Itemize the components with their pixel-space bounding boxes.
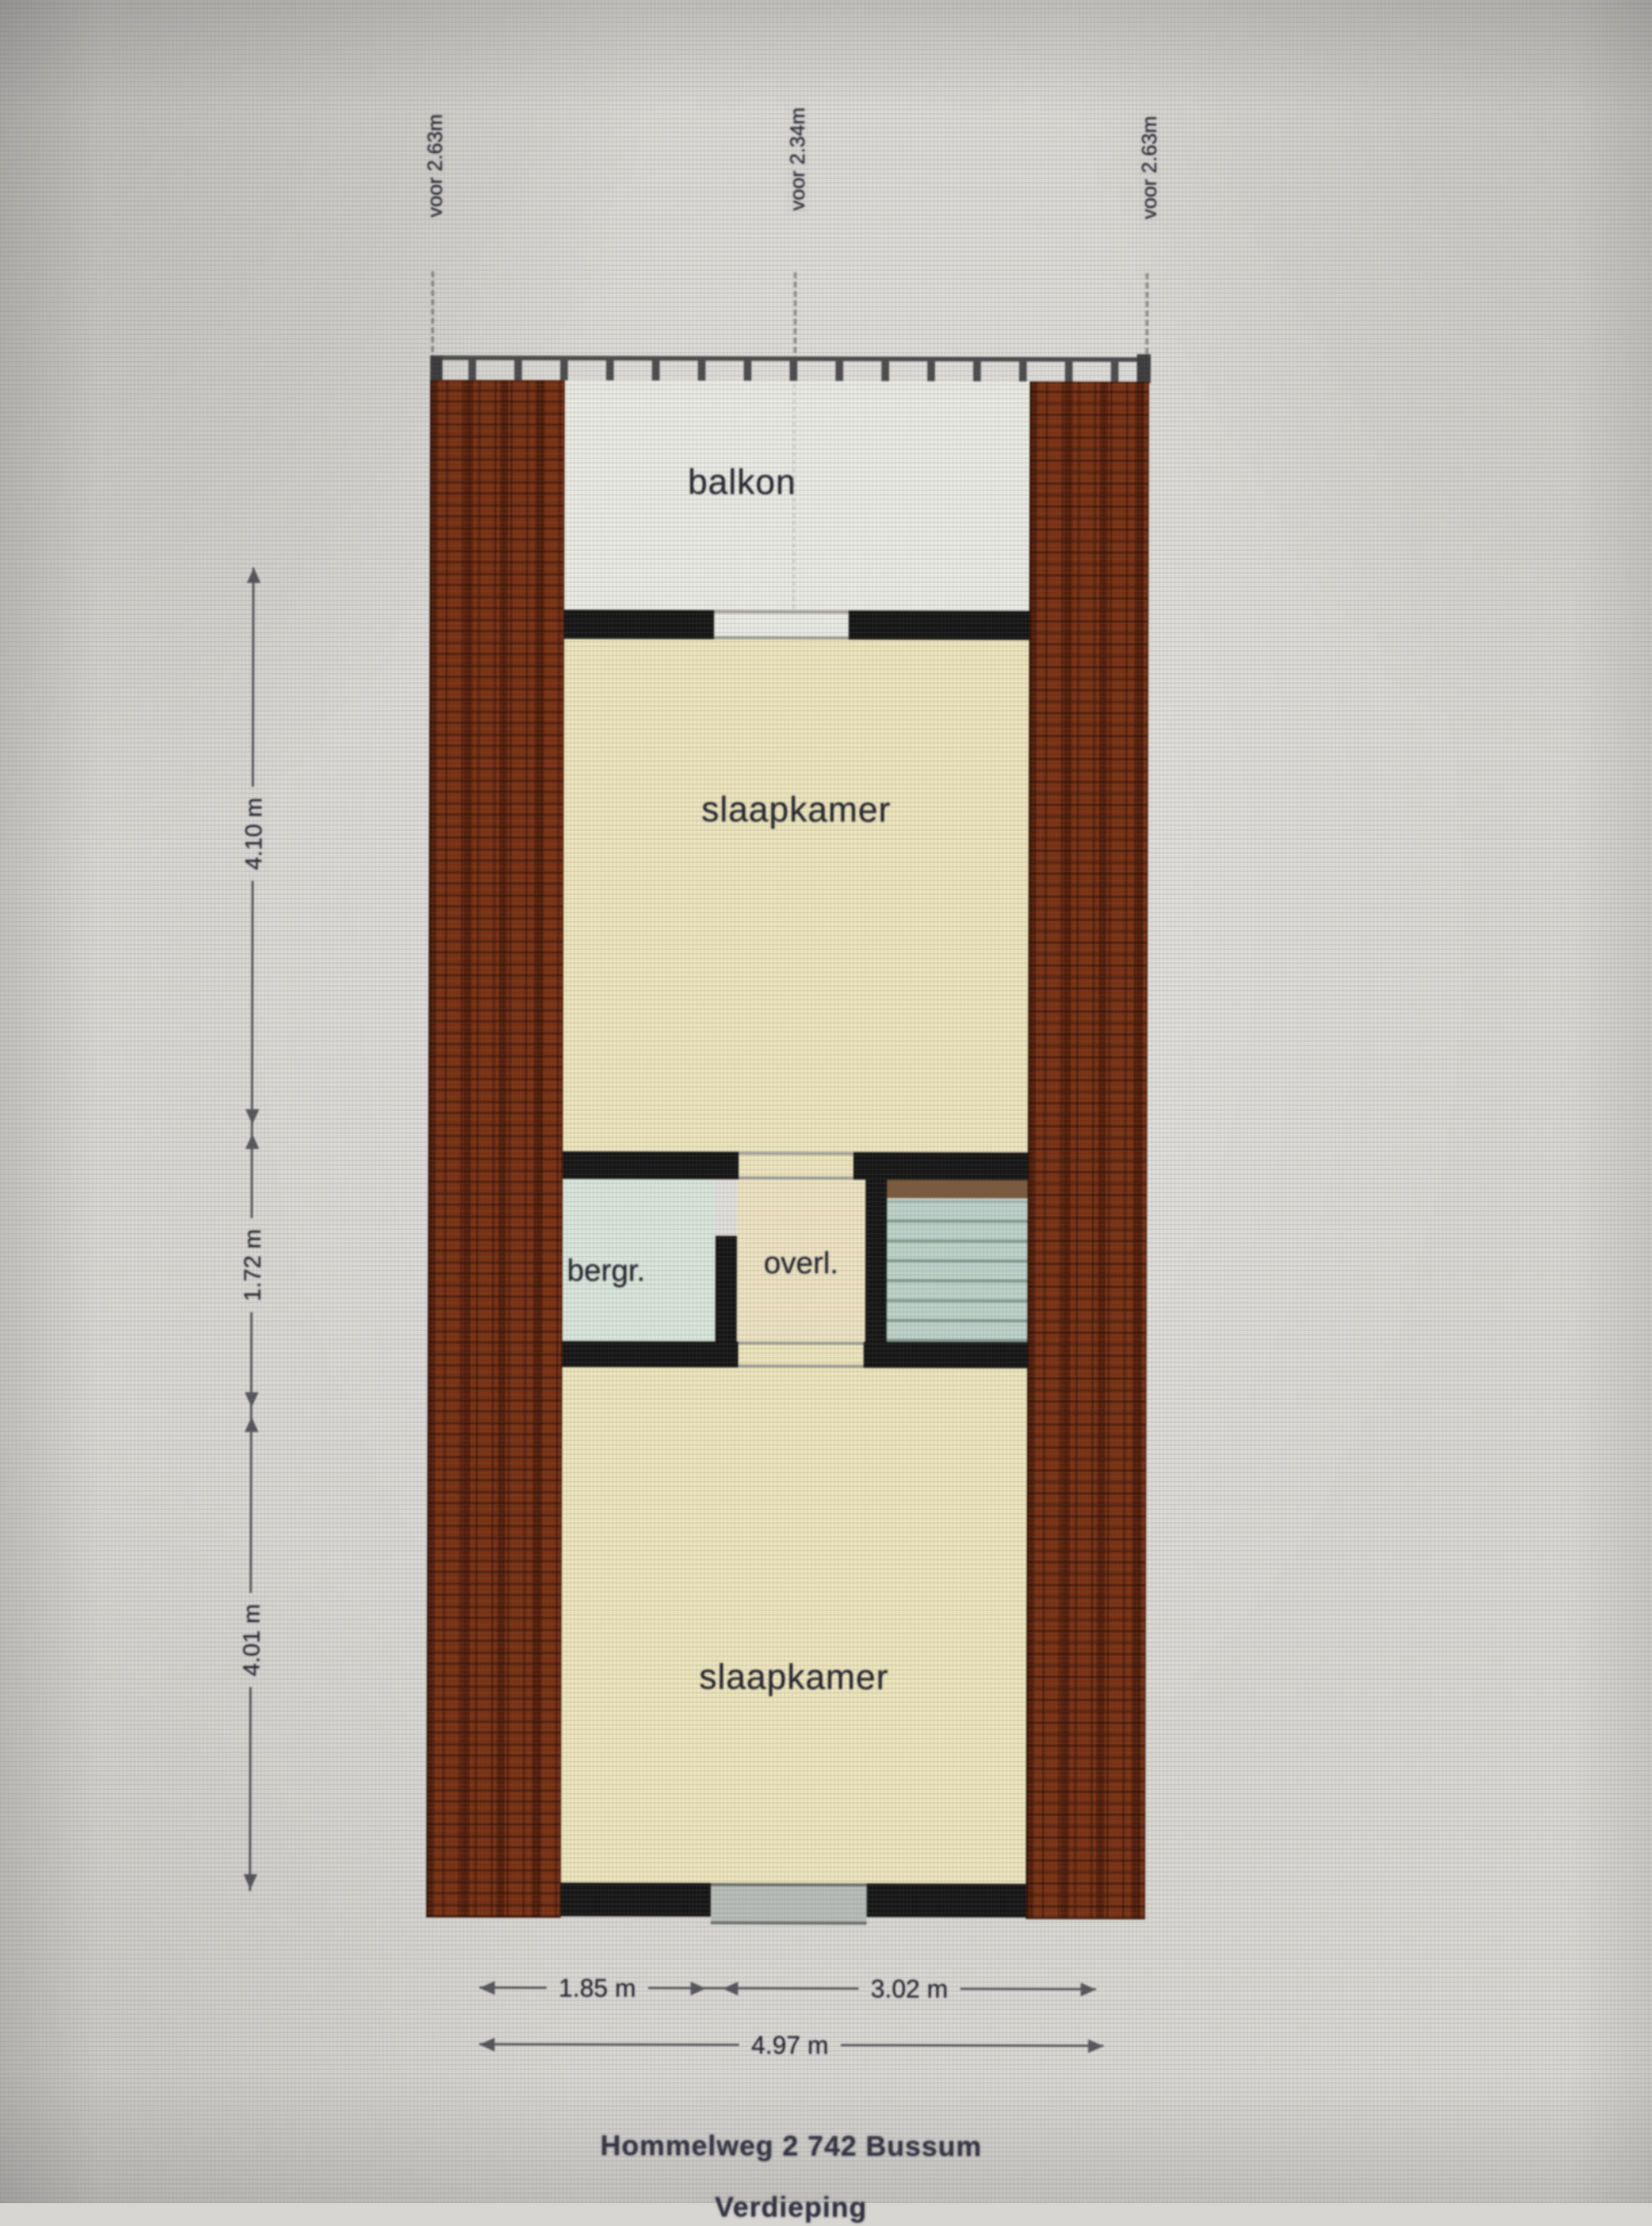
screen-photo-background: voor 2.63m voor 2.34m voor 2.63m balkon …	[0, 0, 1652, 2203]
bottom-dim-label-right: 3.02 m	[858, 1974, 960, 2003]
stair-divider-wall	[865, 1152, 887, 1342]
dim-arrow	[1088, 2039, 1104, 2053]
railing-corner-post-left	[430, 356, 442, 382]
landing-label: overl.	[763, 1246, 838, 1281]
stairwell	[886, 1180, 1028, 1342]
dim-arrow	[246, 1109, 259, 1124]
brick-wall-left	[426, 380, 564, 1918]
bottom-wall-right	[867, 1883, 1026, 1918]
railing-corner-post-right	[1137, 354, 1150, 383]
left-dim-label-middle: 1.72 m	[239, 1219, 266, 1313]
plan-caption-address: Hommelweg 2 742 Bussum	[600, 2130, 982, 2163]
bottom-window	[711, 1883, 867, 1925]
balcony-wall-left	[564, 610, 714, 639]
bottom-dim-label-total: 4.97 m	[739, 2031, 841, 2060]
stairwell-landing-edge	[887, 1180, 1028, 1198]
dim-arrow	[247, 568, 261, 583]
left-dim-label-lower: 4.01 m	[238, 1593, 265, 1687]
top-dimension-label-middle: voor 2.34m	[786, 103, 810, 215]
dim-arrow	[245, 1417, 259, 1432]
floor-plan: voor 2.63m voor 2.34m voor 2.63m balkon …	[0, 0, 1652, 2205]
top-dimension-label-left: voor 2.63m	[424, 109, 447, 222]
plan-caption-floor: Verdieping	[715, 2192, 867, 2224]
top-dimension-label-right: voor 2.63m	[1138, 112, 1162, 224]
dim-arrow	[691, 1982, 706, 1996]
bottom-wall-left	[561, 1883, 711, 1917]
middle-top-door-opening	[739, 1152, 854, 1180]
balcony-door-opening	[714, 610, 849, 639]
dim-arrow	[1081, 1983, 1096, 1997]
dim-arrow	[480, 1981, 495, 1995]
storage-room-label: bergr.	[567, 1254, 645, 1288]
bedroom-lower-label: slaapkamer	[699, 1656, 889, 1698]
balcony-label: balkon	[688, 461, 796, 503]
bedroom-upper	[563, 639, 1029, 1153]
dim-arrow	[245, 1392, 259, 1408]
middle-bottom-door-opening	[738, 1342, 863, 1368]
balcony	[564, 380, 1030, 611]
balcony-wall-right	[849, 610, 1029, 640]
bottom-dim-label-left: 1.85 m	[546, 1974, 648, 2003]
dim-arrow	[243, 1874, 257, 1889]
brick-wall-right	[1026, 382, 1149, 1919]
dim-arrow	[246, 1134, 259, 1149]
dim-arrow	[480, 2038, 495, 2052]
dim-arrow	[723, 1982, 738, 1996]
storage-divider-wall	[715, 1236, 737, 1342]
left-dim-label-upper: 4.10 m	[240, 787, 268, 881]
bedroom-lower	[561, 1367, 1027, 1884]
bedroom-upper-label: slaapkamer	[701, 789, 891, 831]
